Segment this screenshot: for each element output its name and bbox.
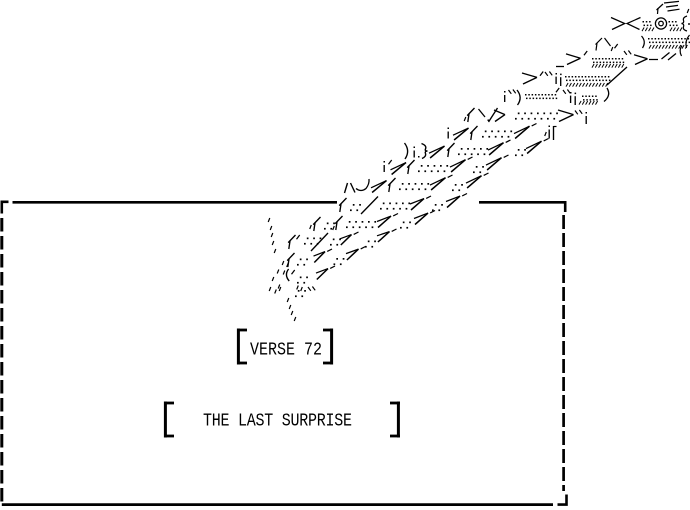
svg-text:VERSE 72: VERSE 72 <box>250 340 322 361</box>
svg-text:THE LAST SURPRISE: THE LAST SURPRISE <box>203 411 352 432</box>
